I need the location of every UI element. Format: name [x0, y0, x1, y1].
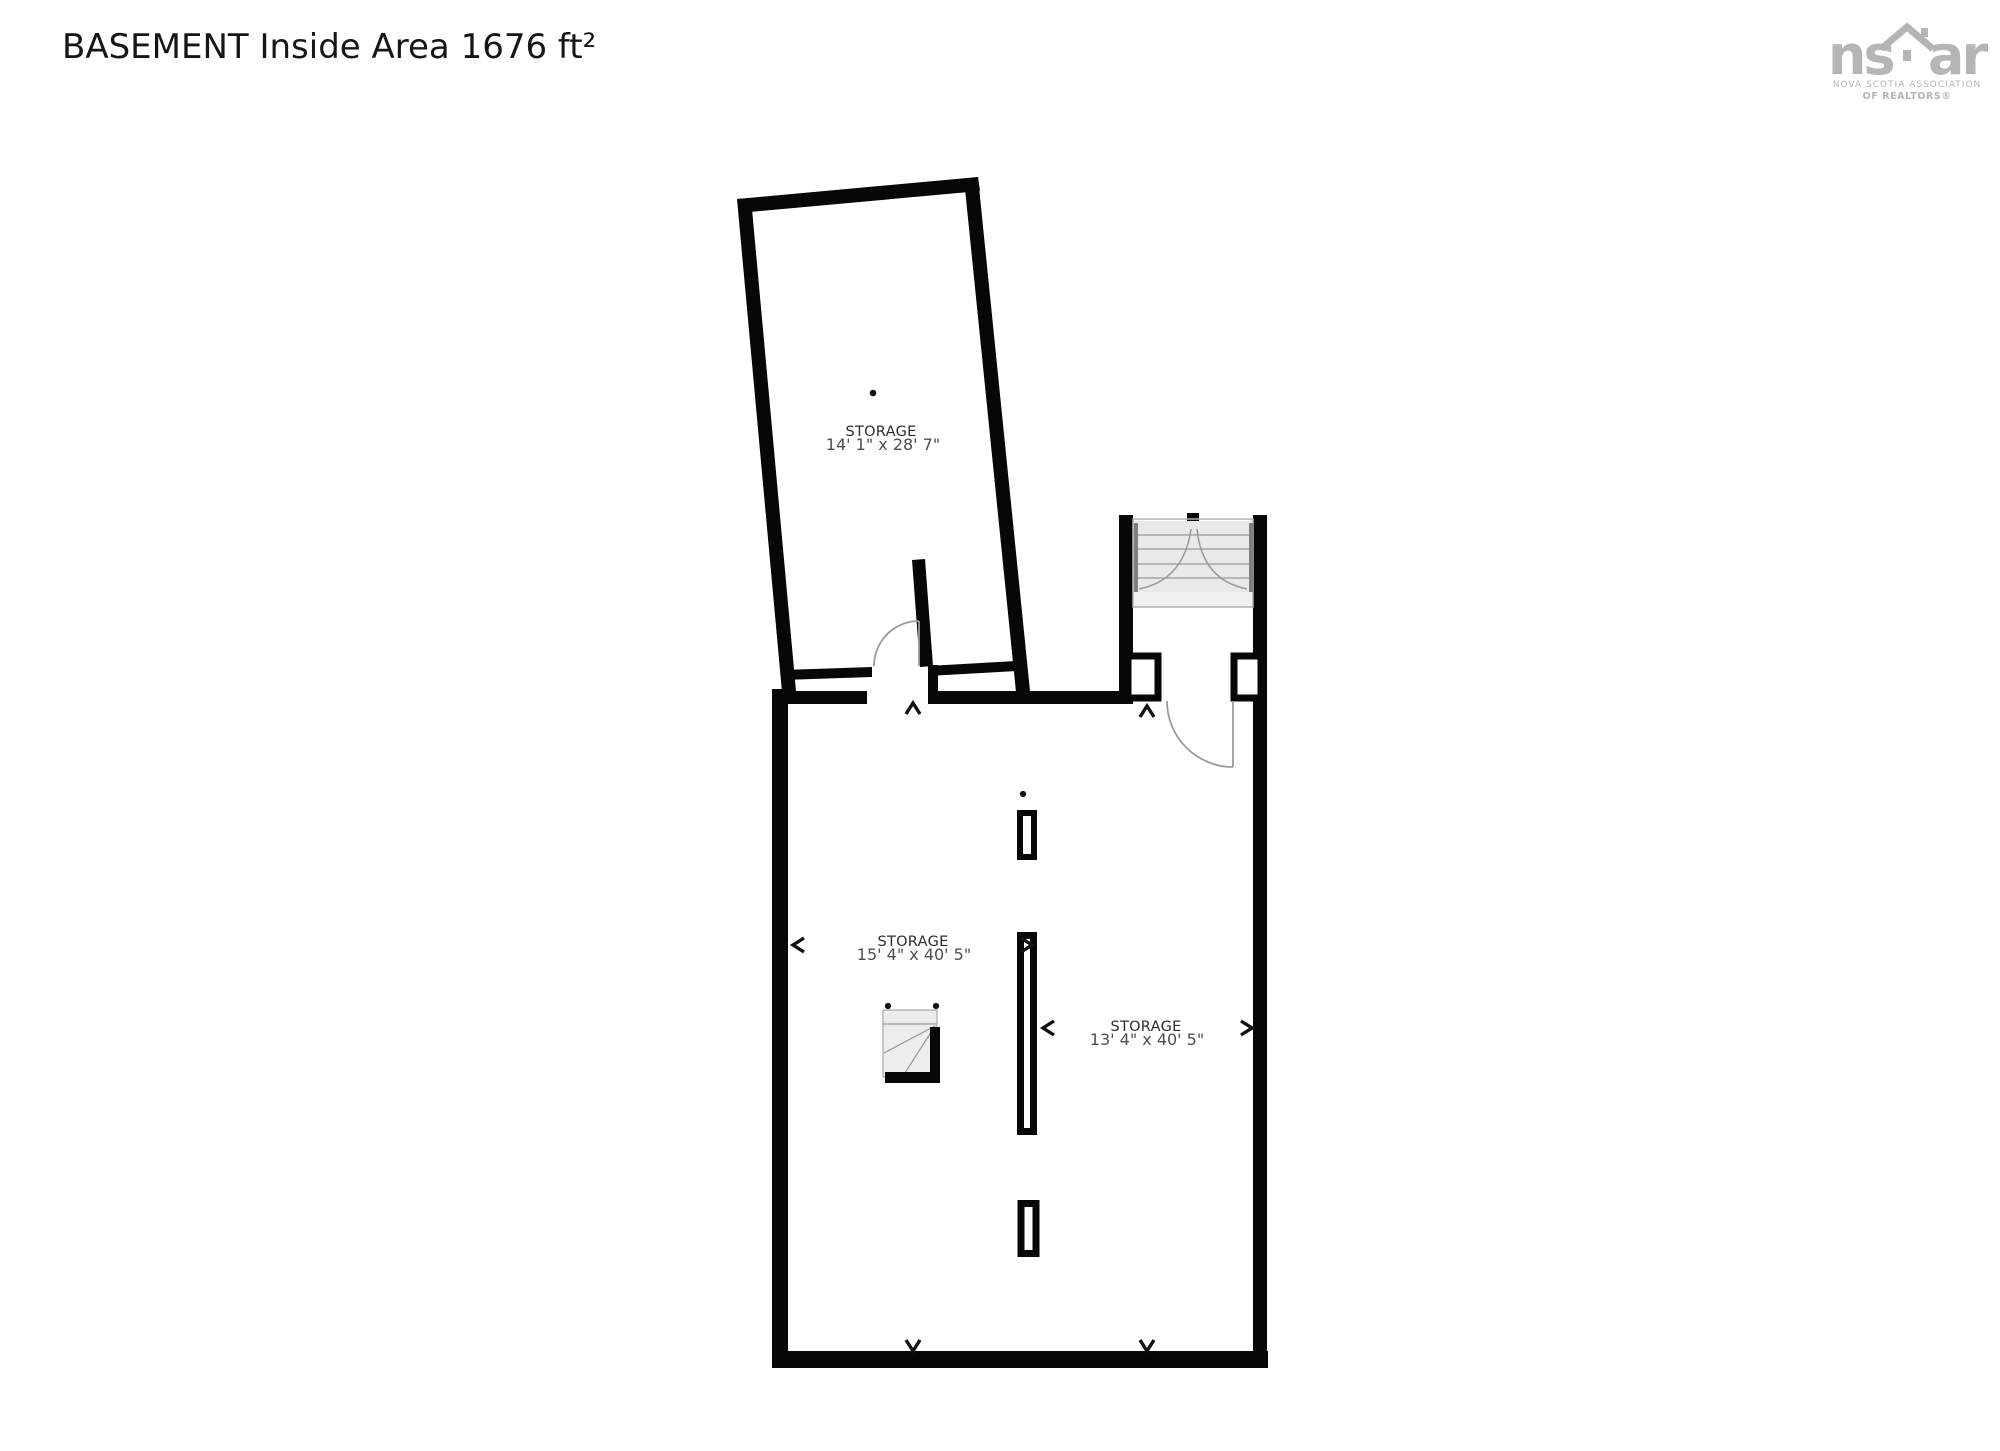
- column-duct-lower: [1021, 1204, 1036, 1254]
- main-room-top-wall-mid: [928, 691, 1133, 704]
- column-duct-upper: [1020, 813, 1034, 857]
- point-marker-stairs-left: [885, 1003, 891, 1009]
- door-jamb-partition-wall: [912, 559, 933, 667]
- storage-left-dims: 15' 4" x 40' 5": [857, 945, 971, 964]
- nsar-logo: ns ar NOVA SCOTIA ASSOCIATION OF REALTOR…: [1828, 24, 1988, 102]
- central-partitions: [1020, 813, 1036, 1254]
- upper-room-right-wall: [964, 177, 1030, 692]
- measure-arrow-east-room3: [1241, 1021, 1252, 1035]
- basement-stairs-icon: [883, 1010, 940, 1083]
- center-partition-wall: [1021, 936, 1034, 1132]
- measure-arrow-west-room2: [793, 938, 804, 952]
- stair-door-jamb-right: [1234, 656, 1261, 698]
- room-labels: STORAGE 14' 1" x 28' 7" STORAGE 15' 4" x…: [826, 424, 1204, 1049]
- page-title: BASEMENT Inside Area 1676 ft²: [62, 27, 596, 67]
- main-room-right-wall: [1253, 515, 1267, 1368]
- main-room-left-wall: [772, 689, 788, 1368]
- point-marker-main-room: [1020, 791, 1026, 797]
- logo-line1: NOVA SCOTIA ASSOCIATION: [1833, 80, 1982, 90]
- logo-chimney-icon: [1921, 28, 1928, 37]
- measure-arrow-west-room3: [1043, 1021, 1054, 1035]
- point-marker-upper-room: [870, 390, 877, 397]
- stairs-icon-wall-bottom: [885, 1072, 940, 1083]
- stair-door-arc: [1167, 701, 1233, 767]
- logo-door-icon: [1903, 50, 1911, 61]
- upper-room-bottom-wall-right: [928, 661, 1018, 676]
- measure-arrow-down-right: [1140, 1340, 1154, 1351]
- upper-room-top-wall: [737, 177, 980, 213]
- walls: [737, 177, 1268, 1368]
- measure-arrow-up-left: [906, 703, 920, 714]
- floor-plan-page: BASEMENT Inside Area 1676 ft² ns ar NOVA…: [0, 0, 2000, 1451]
- storage-right-dims: 13' 4" x 40' 5": [1090, 1030, 1204, 1049]
- upper-room-bottom-wall-left: [783, 667, 872, 680]
- stair-treads: [1133, 521, 1253, 592]
- upper-room-left-wall: [737, 198, 796, 692]
- main-room-bottom-wall: [772, 1351, 1268, 1368]
- stair-rail-right: [1249, 523, 1253, 592]
- upper-room-door-arc: [874, 621, 919, 666]
- stair-landing: [1133, 592, 1253, 607]
- storage-upper-dims: 14' 1" x 28' 7": [826, 435, 940, 454]
- logo-line2: OF REALTORS®: [1863, 91, 1952, 102]
- stair-rail-left: [1134, 523, 1138, 592]
- logo-ar-text: ar: [1928, 24, 1988, 87]
- measure-arrow-down-left: [906, 1340, 920, 1351]
- main-room-top-wall-left: [772, 691, 867, 704]
- top-wall-connector: [928, 665, 938, 704]
- staircase: [1133, 519, 1253, 607]
- stair-door-jamb-left: [1128, 656, 1158, 698]
- floor-plan-canvas: BASEMENT Inside Area 1676 ft² ns ar NOVA…: [0, 0, 2000, 1451]
- logo-ns-text: ns: [1828, 24, 1893, 87]
- measure-arrow-up-right: [1140, 706, 1154, 717]
- point-marker-stairs-right: [933, 1003, 939, 1009]
